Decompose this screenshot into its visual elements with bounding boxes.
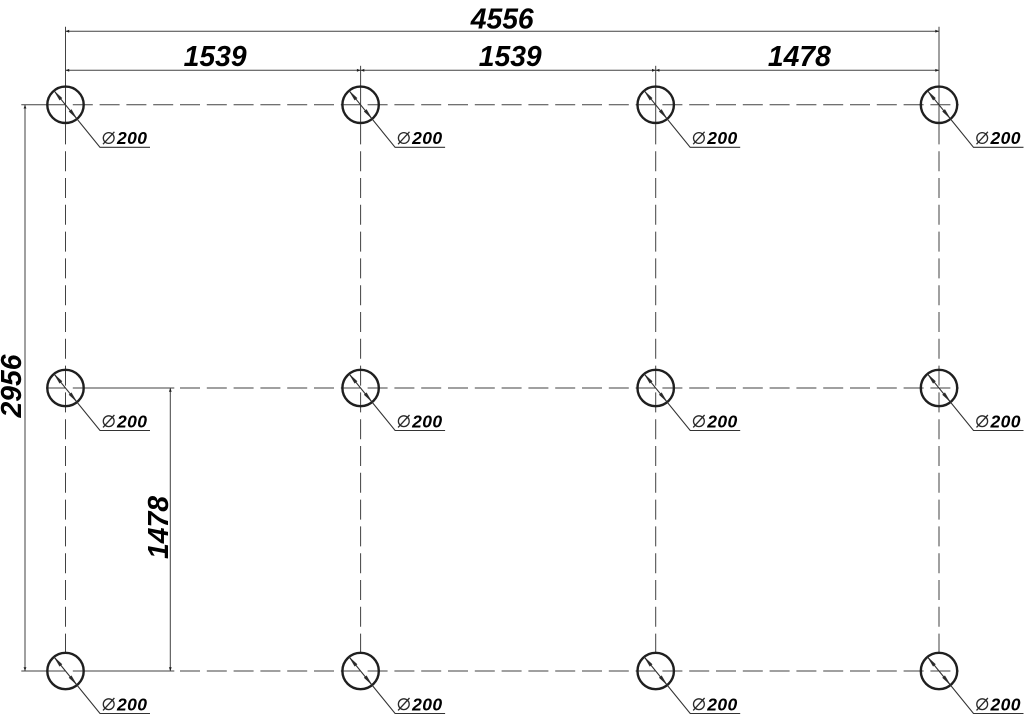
svg-text:1478: 1478: [142, 496, 174, 559]
svg-text:200: 200: [990, 411, 1021, 431]
svg-text:4556: 4556: [470, 3, 534, 35]
svg-text:1539: 1539: [184, 40, 247, 72]
svg-text:1478: 1478: [768, 40, 831, 72]
svg-text:200: 200: [706, 411, 737, 431]
svg-text:200: 200: [116, 128, 147, 148]
svg-text:200: 200: [706, 694, 737, 714]
svg-text:200: 200: [990, 694, 1021, 714]
svg-text:200: 200: [116, 411, 147, 431]
svg-text:200: 200: [706, 128, 737, 148]
svg-text:200: 200: [116, 694, 147, 714]
svg-text:1539: 1539: [479, 40, 542, 72]
svg-text:200: 200: [990, 128, 1021, 148]
svg-text:200: 200: [411, 128, 442, 148]
svg-text:200: 200: [411, 411, 442, 431]
svg-text:2956: 2956: [0, 354, 27, 418]
svg-text:200: 200: [411, 694, 442, 714]
